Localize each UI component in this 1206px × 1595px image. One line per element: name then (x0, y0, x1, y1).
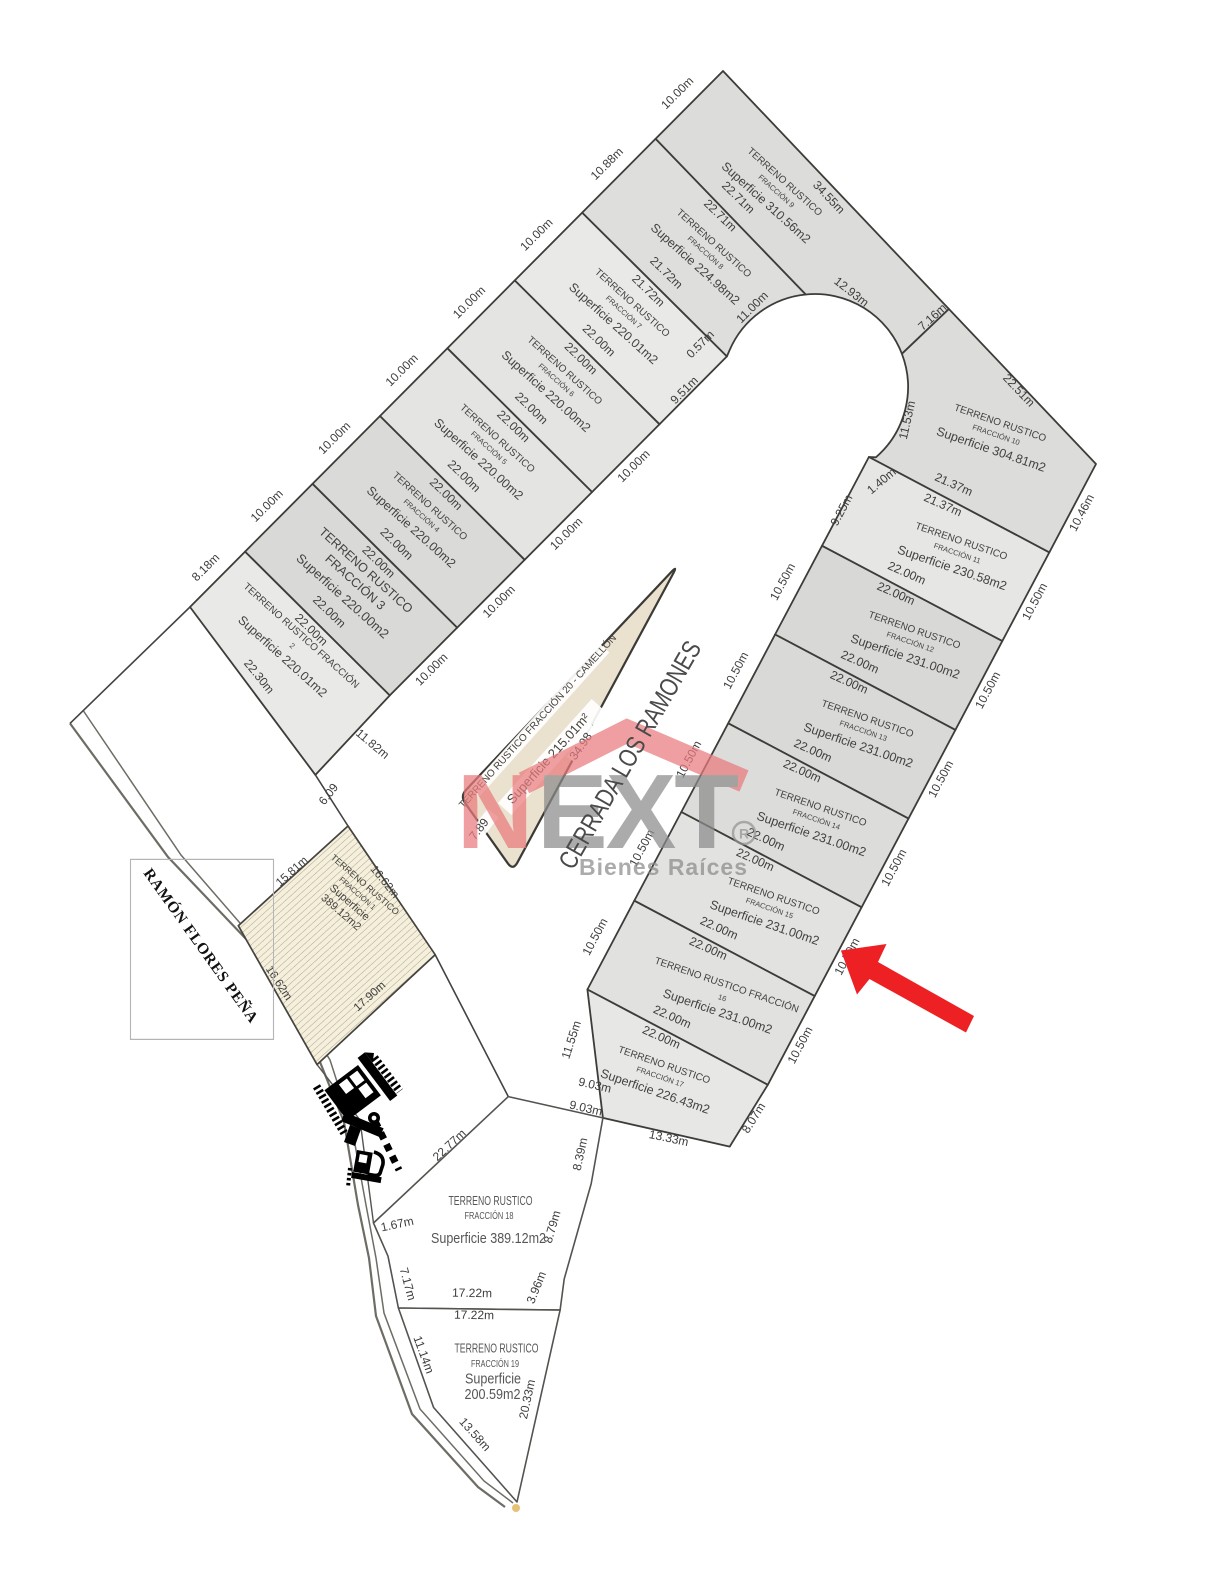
svg-text:TERRENO RUSTICO: TERRENO RUSTICO (455, 1341, 539, 1356)
svg-text:FRACCIÓN 19: FRACCIÓN 19 (471, 1357, 519, 1370)
svg-text:17.22m: 17.22m (452, 1286, 492, 1301)
svg-text:R: R (739, 826, 749, 842)
svg-text:17.22m: 17.22m (454, 1308, 494, 1323)
svg-text:FRACCIÓN 18: FRACCIÓN 18 (465, 1209, 514, 1222)
svg-text:TERRENO RUSTICO: TERRENO RUSTICO (449, 1193, 533, 1208)
svg-text:Bienes Raíces: Bienes Raíces (579, 854, 748, 880)
svg-text:N: N (457, 753, 534, 871)
svg-text:Superficie: Superficie (465, 1371, 521, 1387)
svg-text:200.59m2: 200.59m2 (465, 1387, 521, 1403)
svg-text:Superficie 389.12m2: Superficie 389.12m2 (431, 1231, 546, 1247)
